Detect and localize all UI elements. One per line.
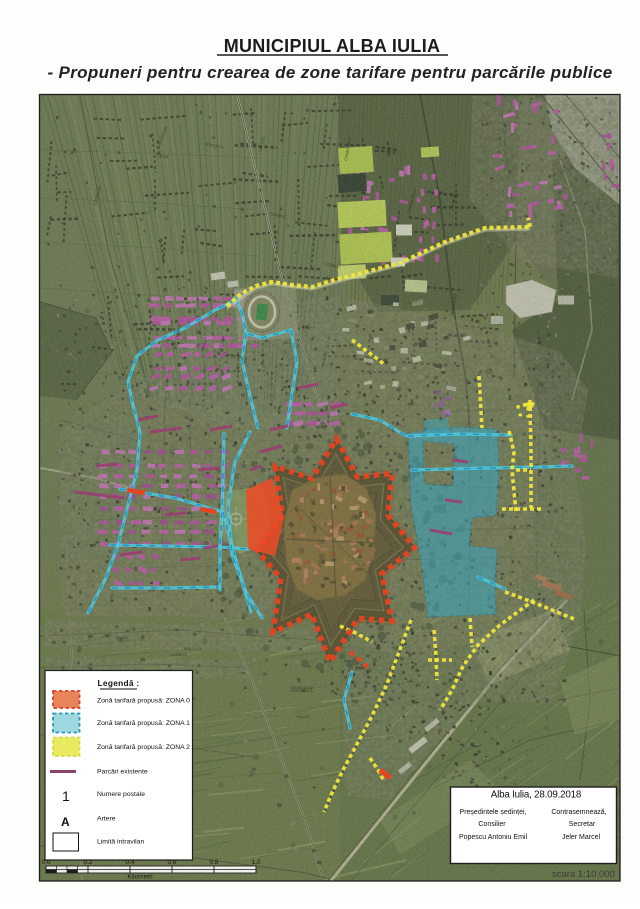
svg-text:Artere: Artere (97, 816, 116, 823)
svg-text:0.8: 0.8 (209, 859, 218, 866)
svg-text:1: 1 (62, 788, 70, 804)
svg-text:scara 1:10.000: scara 1:10.000 (552, 869, 615, 880)
svg-text:Contrasemnează,: Contrasemnează, (551, 809, 606, 816)
svg-text:0.6: 0.6 (167, 859, 176, 866)
svg-text:ARNSBERG: ARNSBERG (290, 688, 312, 693)
svg-text:Secretar: Secretar (569, 821, 596, 828)
svg-text:Numere postale: Numere postale (97, 791, 145, 798)
svg-text:Zonă tarifară propusă: ZONA 2: Zonă tarifară propusă: ZONA 2 (97, 744, 190, 751)
svg-text:0.4: 0.4 (125, 859, 134, 866)
svg-text:MUNICIPIUL ALBA IULIA: MUNICIPIUL ALBA IULIA (224, 36, 441, 56)
svg-text:0.2: 0.2 (83, 859, 92, 866)
svg-text:Zonă tarifară propusă: ZONA 1: Zonă tarifară propusă: ZONA 1 (97, 720, 190, 727)
svg-text:Kilometri: Kilometri (127, 874, 152, 881)
svg-text:Președintele ședinței,: Președintele ședinței, (460, 809, 527, 816)
svg-text:MACULUI: MACULUI (184, 646, 202, 651)
svg-text:A: A (61, 815, 70, 829)
svg-text:Parcări existente: Parcări existente (97, 769, 148, 776)
svg-text:Jeler Marcel: Jeler Marcel (562, 834, 601, 841)
svg-text:Popescu Antoniu Emil: Popescu Antoniu Emil (459, 834, 528, 841)
svg-text:Legendă :: Legendă : (98, 678, 140, 688)
svg-text:Alba Iulia, 28.09.2018: Alba Iulia, 28.09.2018 (491, 790, 582, 801)
svg-text:1.0: 1.0 (251, 859, 260, 866)
svg-text:COSBUC: COSBUC (170, 652, 187, 657)
svg-text:VIILOR: VIILOR (296, 714, 309, 719)
svg-text:0.0: 0.0 (41, 859, 50, 866)
svg-text:IZVOR: IZVOR (116, 635, 128, 640)
svg-text:Limită intravilan: Limită intravilan (97, 839, 144, 846)
svg-text:- Propuneri pentru crearea de: - Propuneri pentru crearea de zone tarif… (47, 63, 612, 82)
svg-text:Zonă tarifară propusă: ZONA 0: Zonă tarifară propusă: ZONA 0 (97, 698, 190, 705)
svg-text:Consilier: Consilier (478, 821, 506, 828)
